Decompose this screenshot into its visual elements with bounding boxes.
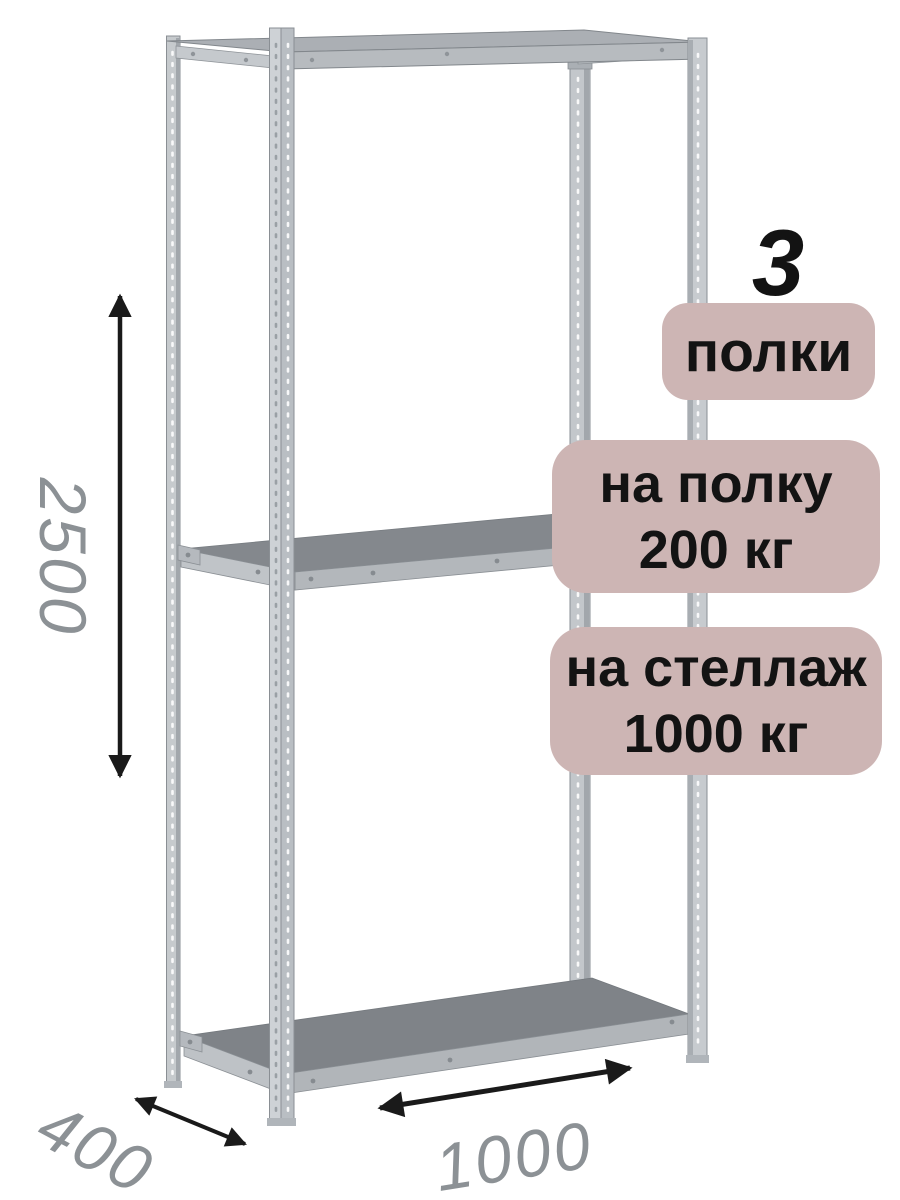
dimension-height-label: 2500 — [25, 478, 101, 637]
screw — [248, 1070, 253, 1075]
rack-illustration — [0, 0, 900, 1200]
front-left-post-foot — [267, 1118, 296, 1126]
bottom-shelf — [180, 978, 689, 1094]
shelf-count-number: 3 — [752, 209, 804, 317]
screw — [191, 52, 195, 56]
shelf-load-badge: на полку 200 кг — [552, 440, 880, 593]
front-right-post-foot — [686, 1055, 709, 1063]
rack-load-line1: на стеллаж — [565, 635, 866, 701]
rear-left-post-edge — [176, 38, 180, 1085]
screw — [186, 553, 191, 558]
screw — [188, 1040, 193, 1045]
shelf-count-badge: полки — [662, 303, 875, 400]
shelf-load-line1: на полку — [599, 451, 832, 517]
screw — [660, 48, 664, 52]
screw — [310, 58, 314, 62]
screw — [670, 1020, 675, 1025]
rear-left-post-foot — [164, 1081, 182, 1088]
shelf-count-badge-label: полки — [685, 319, 853, 385]
top-shelf — [167, 30, 702, 69]
screw — [256, 570, 261, 575]
screw — [309, 577, 314, 582]
screw — [371, 571, 376, 576]
shelf-load-line2: 200 кг — [639, 517, 794, 583]
screw — [495, 559, 500, 564]
screw — [311, 1079, 316, 1084]
screw — [445, 52, 449, 56]
screw — [448, 1058, 453, 1063]
product-image: 2500 400 1000 3 полки на полку 200 кг на… — [0, 0, 900, 1200]
screw — [244, 58, 248, 62]
rack-load-line2: 1000 кг — [624, 701, 809, 767]
rack-load-badge: на стеллаж 1000 кг — [550, 627, 882, 775]
